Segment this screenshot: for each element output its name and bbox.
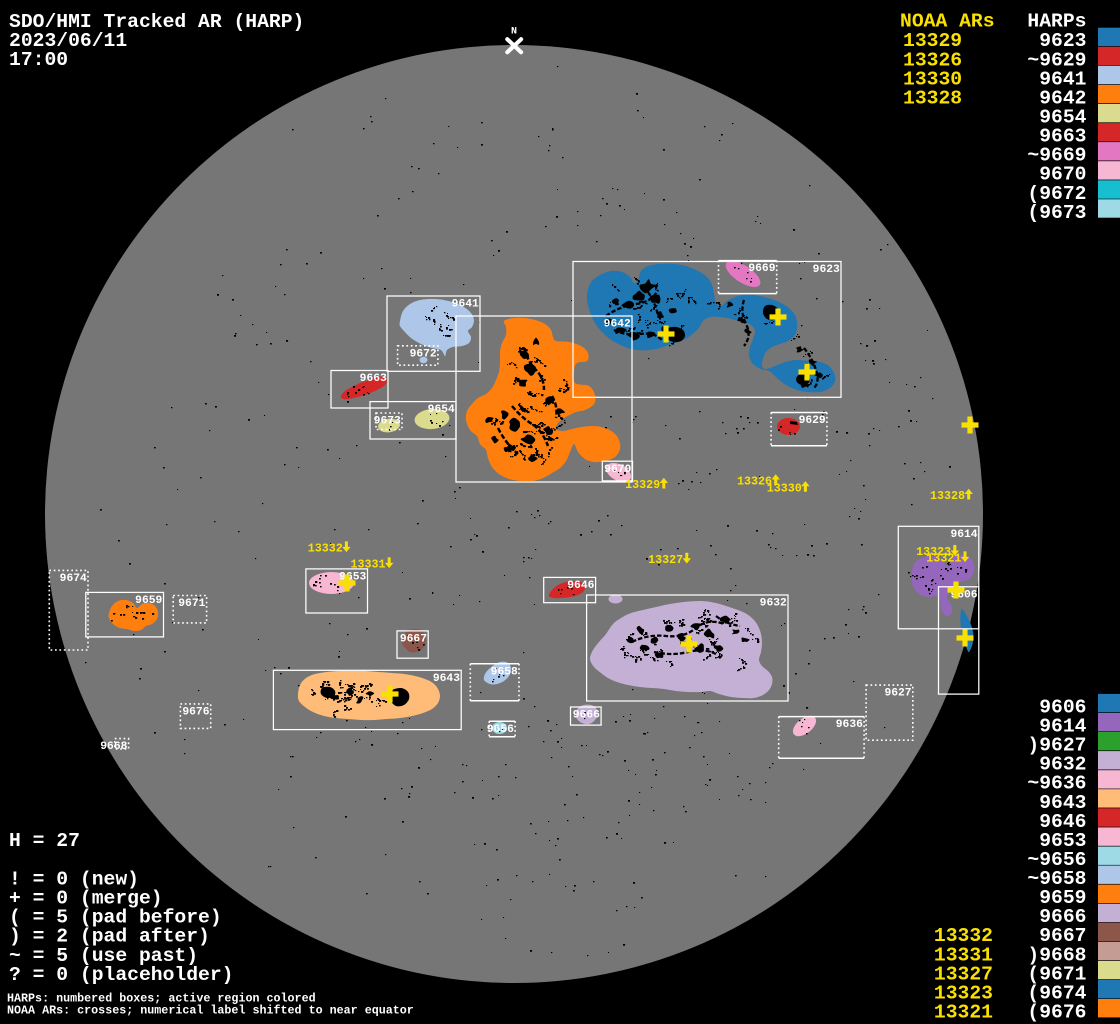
svg-text:(9673: (9673 xyxy=(1027,202,1086,224)
svg-text:9658: 9658 xyxy=(491,666,518,678)
svg-text:9666: 9666 xyxy=(573,710,600,722)
svg-text:9659: 9659 xyxy=(135,595,162,607)
svg-text:N: N xyxy=(511,27,517,38)
svg-text:9663: 9663 xyxy=(360,373,387,385)
svg-text:9668: 9668 xyxy=(100,741,127,753)
svg-text:(9676: (9676 xyxy=(1027,1002,1086,1024)
svg-text:9656: 9656 xyxy=(487,724,514,736)
svg-text:9676: 9676 xyxy=(182,707,209,719)
svg-text:9643: 9643 xyxy=(433,673,460,685)
svg-text:9667: 9667 xyxy=(400,634,427,646)
svg-text:9642: 9642 xyxy=(604,319,631,331)
svg-text:9671: 9671 xyxy=(178,598,205,610)
svg-text:13332: 13332 xyxy=(308,542,343,556)
svg-text:9670: 9670 xyxy=(604,464,631,476)
svg-text:13321: 13321 xyxy=(934,1002,993,1024)
svg-text:9636: 9636 xyxy=(836,719,863,731)
svg-text:13329: 13329 xyxy=(625,478,660,492)
svg-text:9623: 9623 xyxy=(813,264,840,276)
svg-text:13328: 13328 xyxy=(930,489,965,503)
svg-text:13321: 13321 xyxy=(926,552,961,566)
svg-text:9632: 9632 xyxy=(760,598,787,610)
svg-text:9669: 9669 xyxy=(748,263,775,275)
svg-text:? = 0 (placeholder): ? = 0 (placeholder) xyxy=(9,964,233,986)
svg-text:9672: 9672 xyxy=(410,348,437,360)
svg-text:9674: 9674 xyxy=(60,573,87,585)
svg-text:9654: 9654 xyxy=(428,404,455,416)
svg-text:17:00: 17:00 xyxy=(9,49,68,71)
svg-text:13328: 13328 xyxy=(903,87,962,109)
svg-text:9646: 9646 xyxy=(567,580,594,592)
svg-text:13327: 13327 xyxy=(648,553,683,567)
svg-text:13330: 13330 xyxy=(767,481,802,495)
svg-text:H = 27: H = 27 xyxy=(9,830,80,852)
svg-text:9629: 9629 xyxy=(799,415,826,427)
svg-text:9641: 9641 xyxy=(452,299,479,311)
svg-text:9673: 9673 xyxy=(374,416,401,428)
svg-text:9627: 9627 xyxy=(884,688,911,700)
svg-text:13331: 13331 xyxy=(351,558,386,572)
svg-text:9614: 9614 xyxy=(950,529,977,541)
svg-text:NOAA ARs: crosses; numerical l: NOAA ARs: crosses; numerical label shift… xyxy=(7,1004,414,1018)
